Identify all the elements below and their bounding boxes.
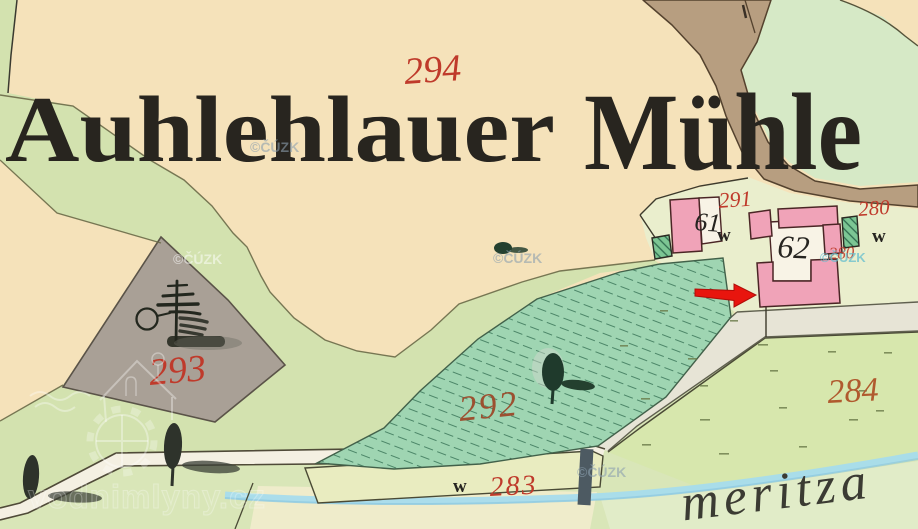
- svg-text:©ČÚZK: ©ČÚZK: [173, 250, 222, 267]
- svg-text:292: 292: [457, 383, 521, 429]
- svg-text:62: 62: [777, 228, 811, 266]
- svg-text:©ČÚZK: ©ČÚZK: [820, 250, 866, 265]
- svg-text:w: w: [717, 225, 731, 246]
- svg-text:283: 283: [489, 470, 539, 503]
- svg-text:280: 280: [857, 195, 891, 221]
- svg-text:w: w: [453, 476, 467, 497]
- svg-text:293: 293: [147, 347, 207, 394]
- svg-text:vodnimlyny.cz: vodnimlyny.cz: [28, 478, 266, 515]
- svg-text:Mühle: Mühle: [584, 71, 862, 193]
- svg-text:©ČÚZK: ©ČÚZK: [250, 138, 299, 155]
- svg-text:284: 284: [826, 371, 879, 411]
- svg-text:©ČÚZK: ©ČÚZK: [577, 463, 626, 480]
- svg-text:©ČÚZK: ©ČÚZK: [493, 249, 542, 266]
- svg-text:w: w: [872, 226, 886, 247]
- svg-text:Auhlehlauer: Auhlehlauer: [5, 78, 555, 182]
